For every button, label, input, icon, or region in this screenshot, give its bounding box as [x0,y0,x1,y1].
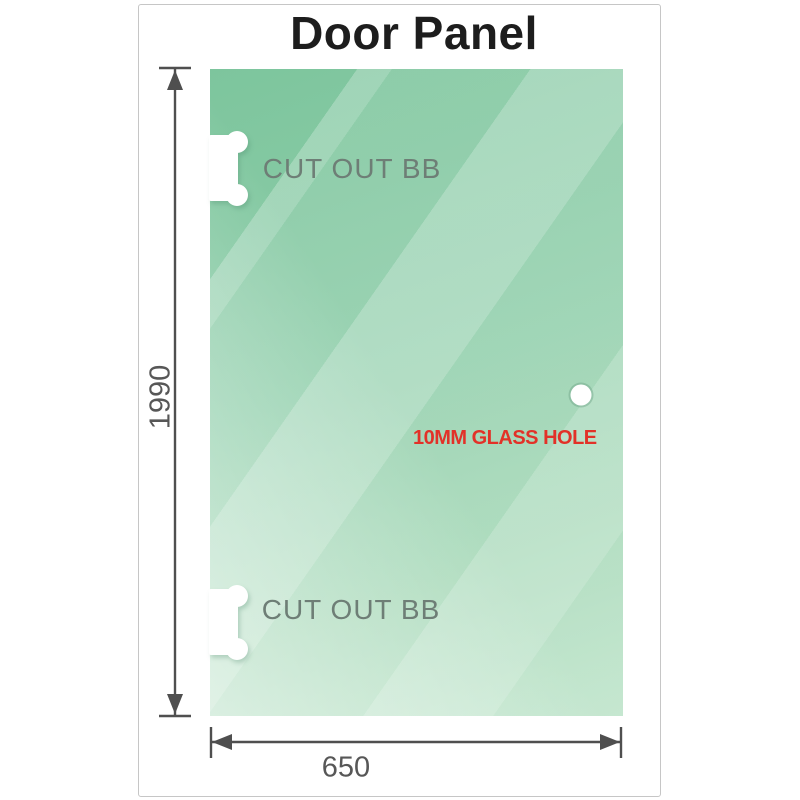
height-dimension-label: 1990 [145,365,178,430]
cutout-bb-top-icon [209,129,257,207]
cutout-bb-bottom-label: CUT OUT BB [262,594,441,626]
glass-hole-label: 10MM GLASS HOLE [413,427,597,450]
width-dimension-label: 650 [322,752,370,785]
page-title: Door Panel [290,6,538,60]
door-panel-glass: CUT OUT BB CUT OUT BB 10MM GLASS HOLE [210,69,623,716]
glass-hole-icon [571,385,592,406]
cutout-bb-bottom-icon [209,583,257,661]
cutout-bb-top-label: CUT OUT BB [263,153,442,185]
diagram-stage: Door Panel CUT OUT BB CUT OUT BB 10MM GL… [0,0,800,800]
